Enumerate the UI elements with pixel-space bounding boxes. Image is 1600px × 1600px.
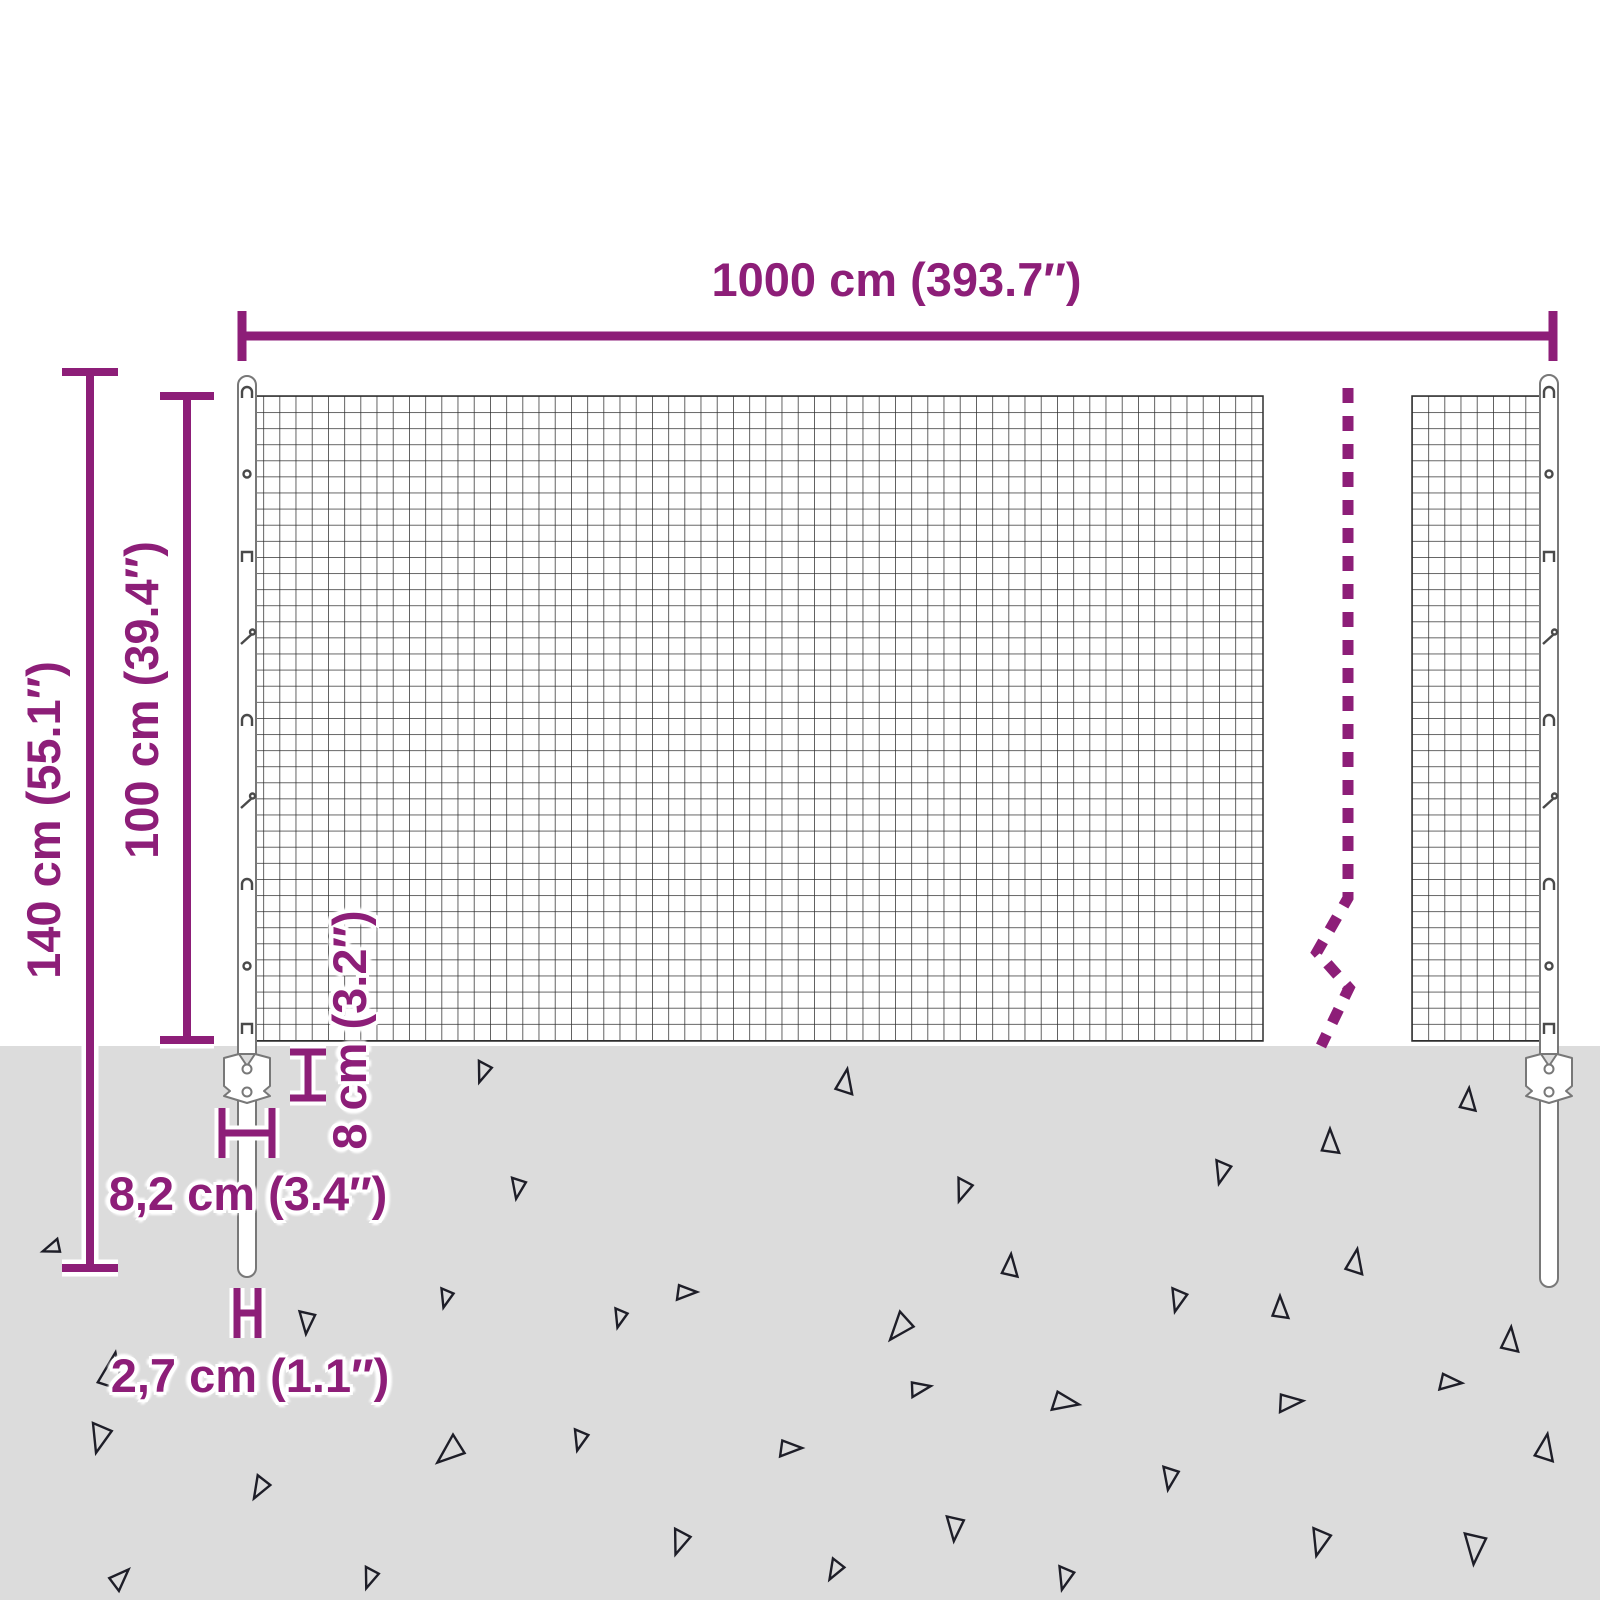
bolt-hole-icon [1545,1065,1554,1074]
mesh-panel-right [1412,396,1553,1041]
mesh-height-label: 100 cm (39.4″) [112,350,172,1050]
bolt-hole-icon [243,1088,252,1097]
fence-mesh [247,396,1553,1041]
width-dimension-line [242,311,1553,361]
total-height-label: 140 cm (55.1″) [14,470,74,1170]
mesh-panel-main [247,396,1263,1041]
fence-width-label: 1000 cm (393.7″) [240,252,1553,307]
product-diagram: 1000 cm (393.7″) 140 cm (55.1″) 100 cm (… [0,0,1600,1600]
anchor-width-label: 8,2 cm (3.4″) [48,1166,448,1221]
bolt-hole-icon [243,1065,252,1074]
right-post-rod [1540,1100,1558,1287]
bolt-hole-icon [1545,1088,1554,1097]
anchor-height-label: 8 cm (3.2″) [320,680,380,1380]
break-line [1317,388,1349,1046]
post-diameter-label: 2,7 cm (1.1″) [50,1348,450,1403]
